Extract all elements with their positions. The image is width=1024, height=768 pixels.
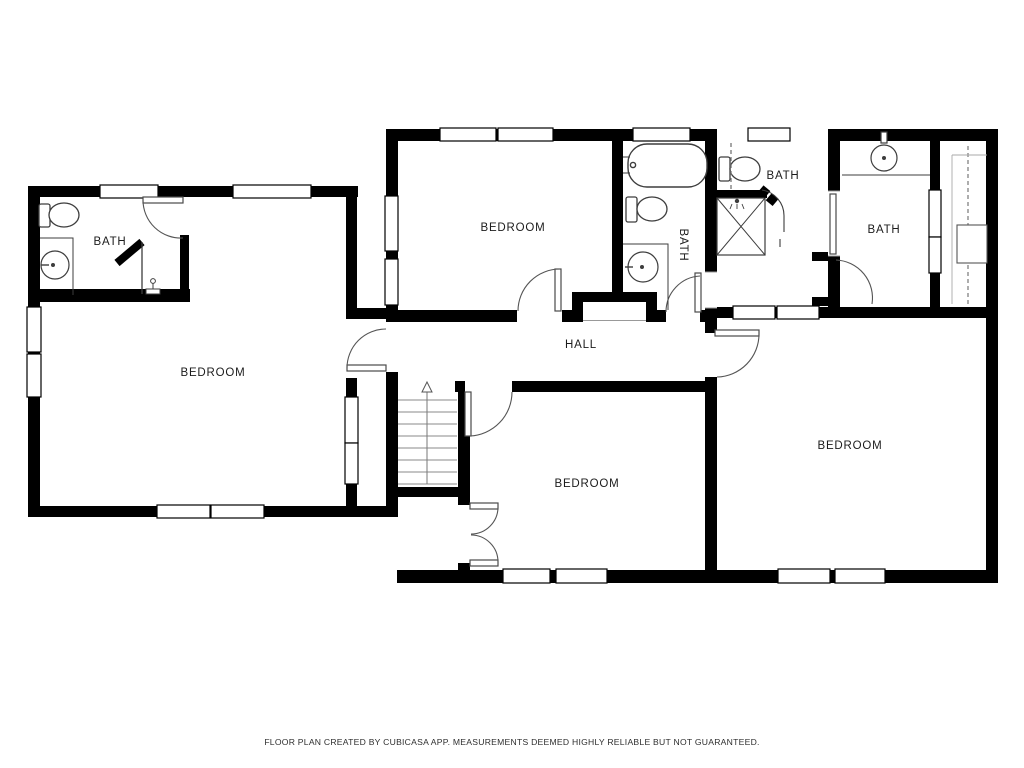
floor-plan-drawing [0,0,1024,768]
toilet-icon-middle [719,157,760,181]
staircase [398,382,457,484]
room-label-bath-middle: BATH [766,170,799,182]
angled-wall-topleft-bath [117,242,142,294]
room-label-bedroom-top: BEDROOM [480,222,545,234]
faucet-icon-topleft [146,279,160,294]
room-label-bedroom-bottom: BEDROOM [554,478,619,490]
shower-icon [717,198,765,255]
room-label-bath-top-left: BATH [93,236,126,248]
room-label-hall: HALL [565,339,597,351]
disclaimer-text: FLOOR PLAN CREATED BY CUBICASA APP. MEAS… [0,737,1024,747]
floor-plan: BATH BEDROOM BEDROOM BATH BATH BATH HALL… [0,0,1024,768]
room-label-bath-center: BATH [677,228,689,261]
sink-icon-topleft [40,238,73,295]
room-label-bath-right: BATH [867,224,900,236]
room-label-bedroom-right: BEDROOM [817,440,882,452]
room-label-bedroom-left: BEDROOM [180,367,245,379]
wardrobe-icon [952,146,987,304]
toilet-icon-topleft [39,203,79,227]
toilet-icon-center [626,197,667,222]
bathtub-icon [623,144,707,187]
